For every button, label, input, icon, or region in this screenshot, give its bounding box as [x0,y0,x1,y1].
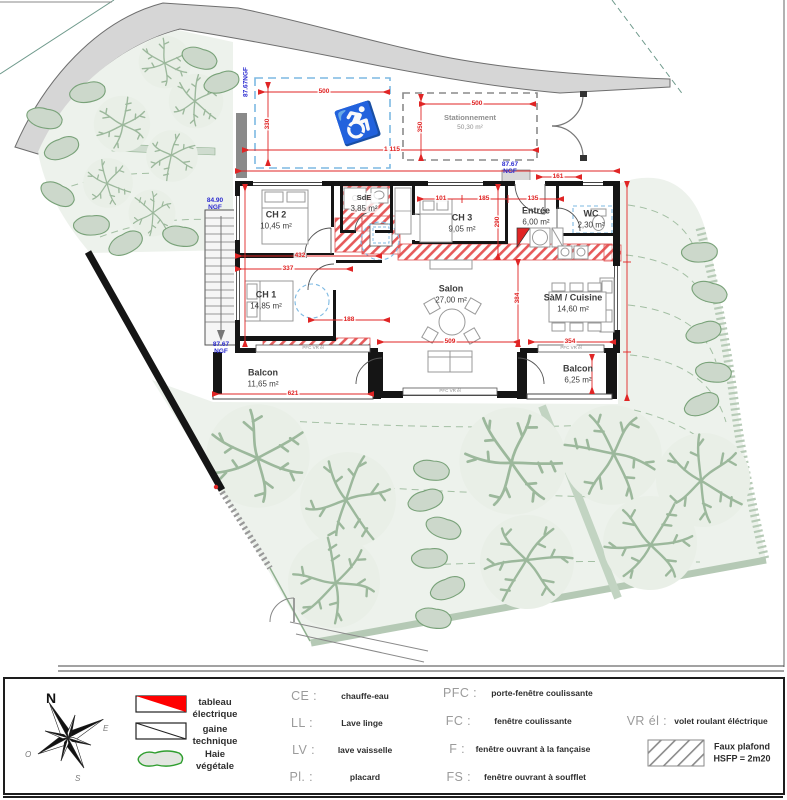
legend-def-f: fenêtre ouvrant à la fançaise [476,744,591,754]
legend-abbr-ll: LL : [291,716,313,730]
tableau-electrique-symbol [135,695,187,713]
dimension-label: 432 [294,253,307,260]
ngf-marker: 87.67NGF [502,161,518,175]
window-label: PFC VR él [302,346,323,351]
parking-zone [403,91,587,182]
haie-vegetale-symbol [135,747,187,771]
dimension-label: 101 [435,196,448,203]
legend-def-ll: Lave linge [341,718,383,728]
compass-rose: N E S O [13,681,123,791]
accessibility-icon: ♿ [332,98,384,148]
compass-n: N [46,690,56,706]
dimension-label: 330 [265,118,272,131]
room-label-balcon1: Balcon11,65 m² [248,368,279,389]
legend-abbr-pfc: PFC : [443,686,477,700]
faux-plafond-symbol [647,739,705,767]
compass-o: O [25,750,31,759]
gate [552,91,587,161]
legend-abbr-f: F : [449,742,465,756]
legend-def-ce: chauffe-eau [341,691,389,701]
legend-abbr-ce: CE : [291,689,317,703]
ngf-marker: 87.67NGF [213,341,229,355]
room-label-salon: Salon27,00 m² [435,284,467,305]
legend-def-pfc: porte-fenêtre coulissante [491,688,593,698]
legend: N E S O tableau électrique gaine techniq… [3,677,785,795]
room-label-sde: SdE3,85 m² [349,193,378,213]
legend-abbr-pl: Pl. : [289,770,313,784]
dimension-label: 1 115 [383,147,401,154]
legend-def-fc: fenêtre coulissante [494,716,571,726]
legend-gaine-label: gaine technique [193,724,238,748]
legend-abbr-lv: LV : [292,743,315,757]
dimension-label: 384 [515,292,522,305]
window-label: PFC VR él [560,346,581,351]
room-label-wc: WC2,30 m² [577,209,604,230]
room-label-parking: Stationnement50,30 m² [444,113,496,131]
legend-abbr-fc: FC : [446,714,471,728]
legend-def-fs: fenêtre ouvrant à soufflet [484,772,586,782]
legend-abbr-vrel: VR él : [627,714,667,728]
salon-table [439,309,465,335]
legend-def-vrel: volet roulant éléctrique [674,716,768,726]
legend-abbr-fs: FS : [446,770,471,784]
dimension-label: 185 [478,196,491,203]
pool-zone: ♿ [236,78,390,178]
dimension-label: 188 [343,317,356,324]
room-label-sam: SàM / Cuisine14,60 m² [544,293,603,314]
dimension-label: 350 [418,121,425,134]
legend-haie-label: Haie végétale [196,749,234,773]
window-label: PFC VR él [439,389,460,394]
dimension-label: 509 [444,339,457,346]
gaine-technique-symbol [135,722,187,740]
title-block-edge [3,796,783,798]
dimension-label: 500 [471,101,484,108]
legend-def-pl: placard [350,772,380,782]
compass-e: E [103,724,109,733]
exterior-stairs [205,210,238,345]
legend-faux-plafond-label: Faux plafond HSFP = 2m20 [713,741,770,764]
room-label-ch1: CH 114,85 m² [250,290,282,311]
dimension-label: 135 [527,196,540,203]
legend-tableau-label: tableau électrique [193,697,238,721]
dimension-label: 621 [287,391,300,398]
legend-def-lv: lave vaisselle [338,745,392,755]
room-label-ch2: CH 210,45 m² [260,210,292,231]
room-label-balcon2: Balcon6,25 m² [563,364,593,385]
floor-plan-sheet: ♿ [0,0,787,800]
site-plan-drawing: ♿ [0,0,787,676]
ngf-marker: 84.90NGF [207,197,223,211]
room-label-ch3: CH 39,05 m² [448,213,475,234]
ngf-marker: 87.67NGF [242,67,249,97]
room-label-entree: Entrée6,00 m² [522,206,550,227]
dimension-label: 337 [282,266,295,273]
dimension-label: 161 [552,174,565,181]
compass-s: S [75,774,81,783]
dimension-label: 290 [495,216,502,229]
dimension-label: 500 [318,89,331,96]
